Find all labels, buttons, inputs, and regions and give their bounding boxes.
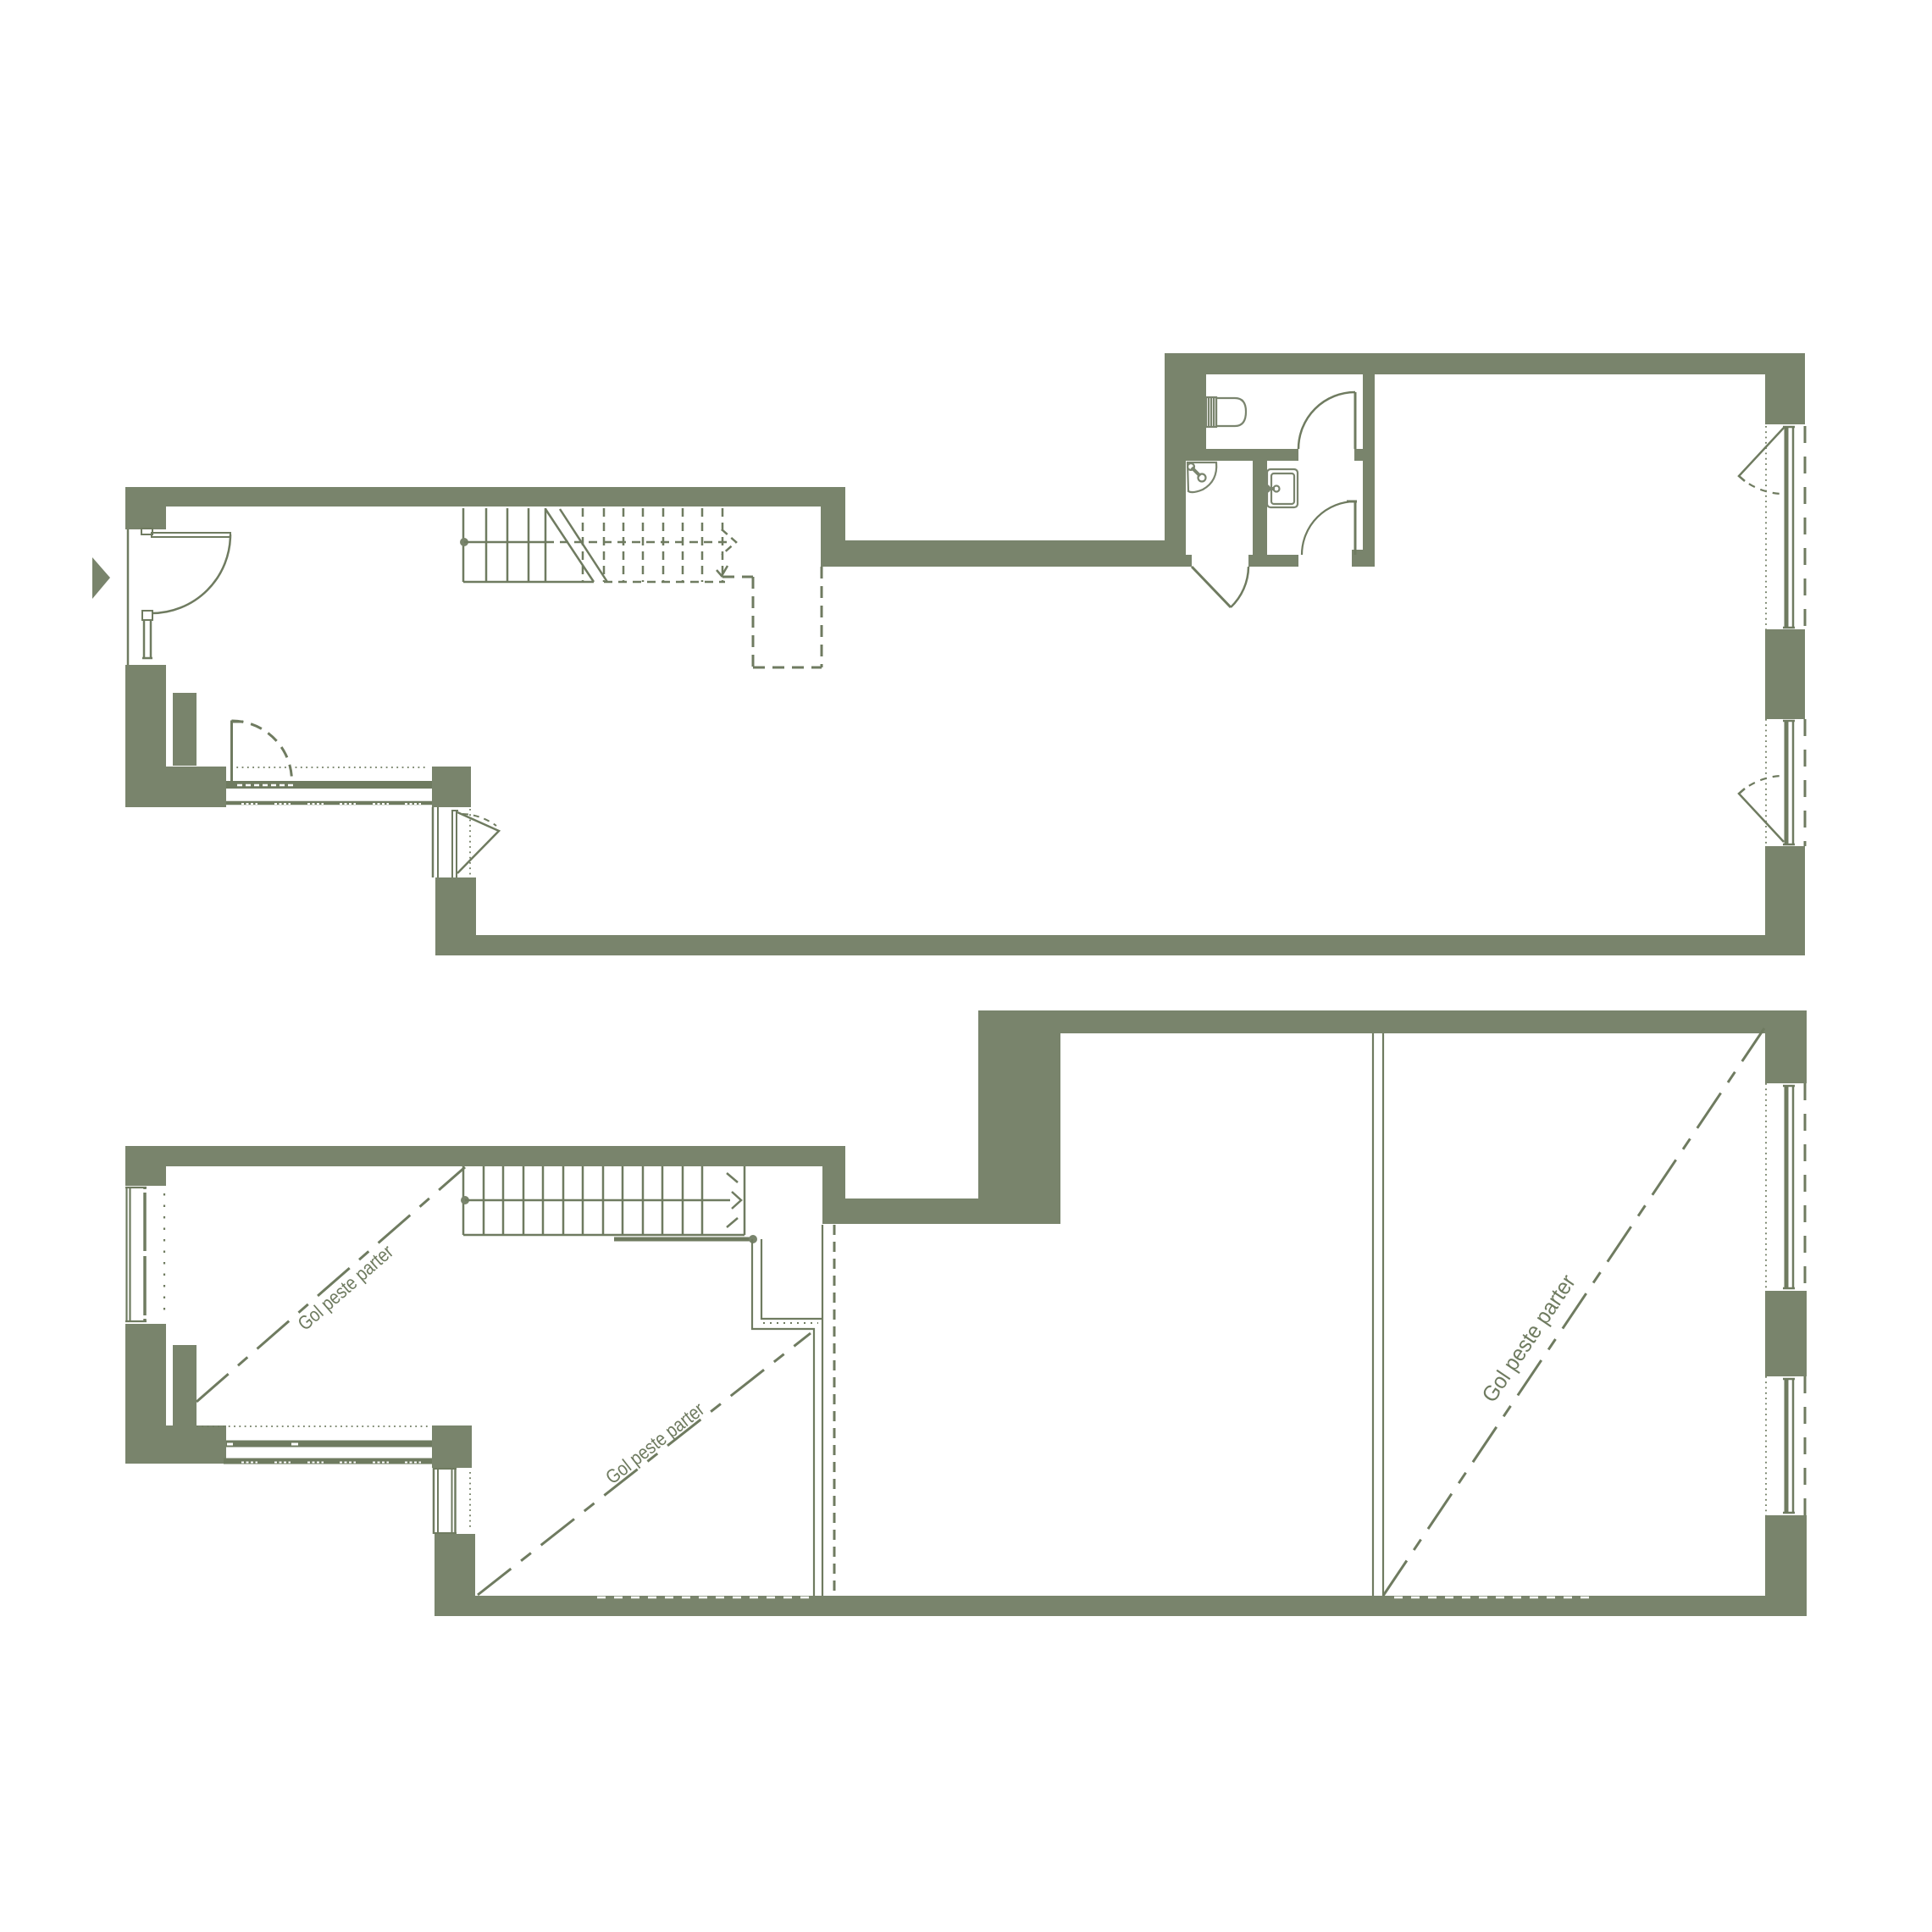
svg-text:Gol peste parter: Gol peste parter: [601, 1398, 709, 1488]
svg-text:Gol peste parter: Gol peste parter: [1476, 1270, 1580, 1407]
svg-text:Gol peste parter: Gol peste parter: [293, 1240, 397, 1335]
